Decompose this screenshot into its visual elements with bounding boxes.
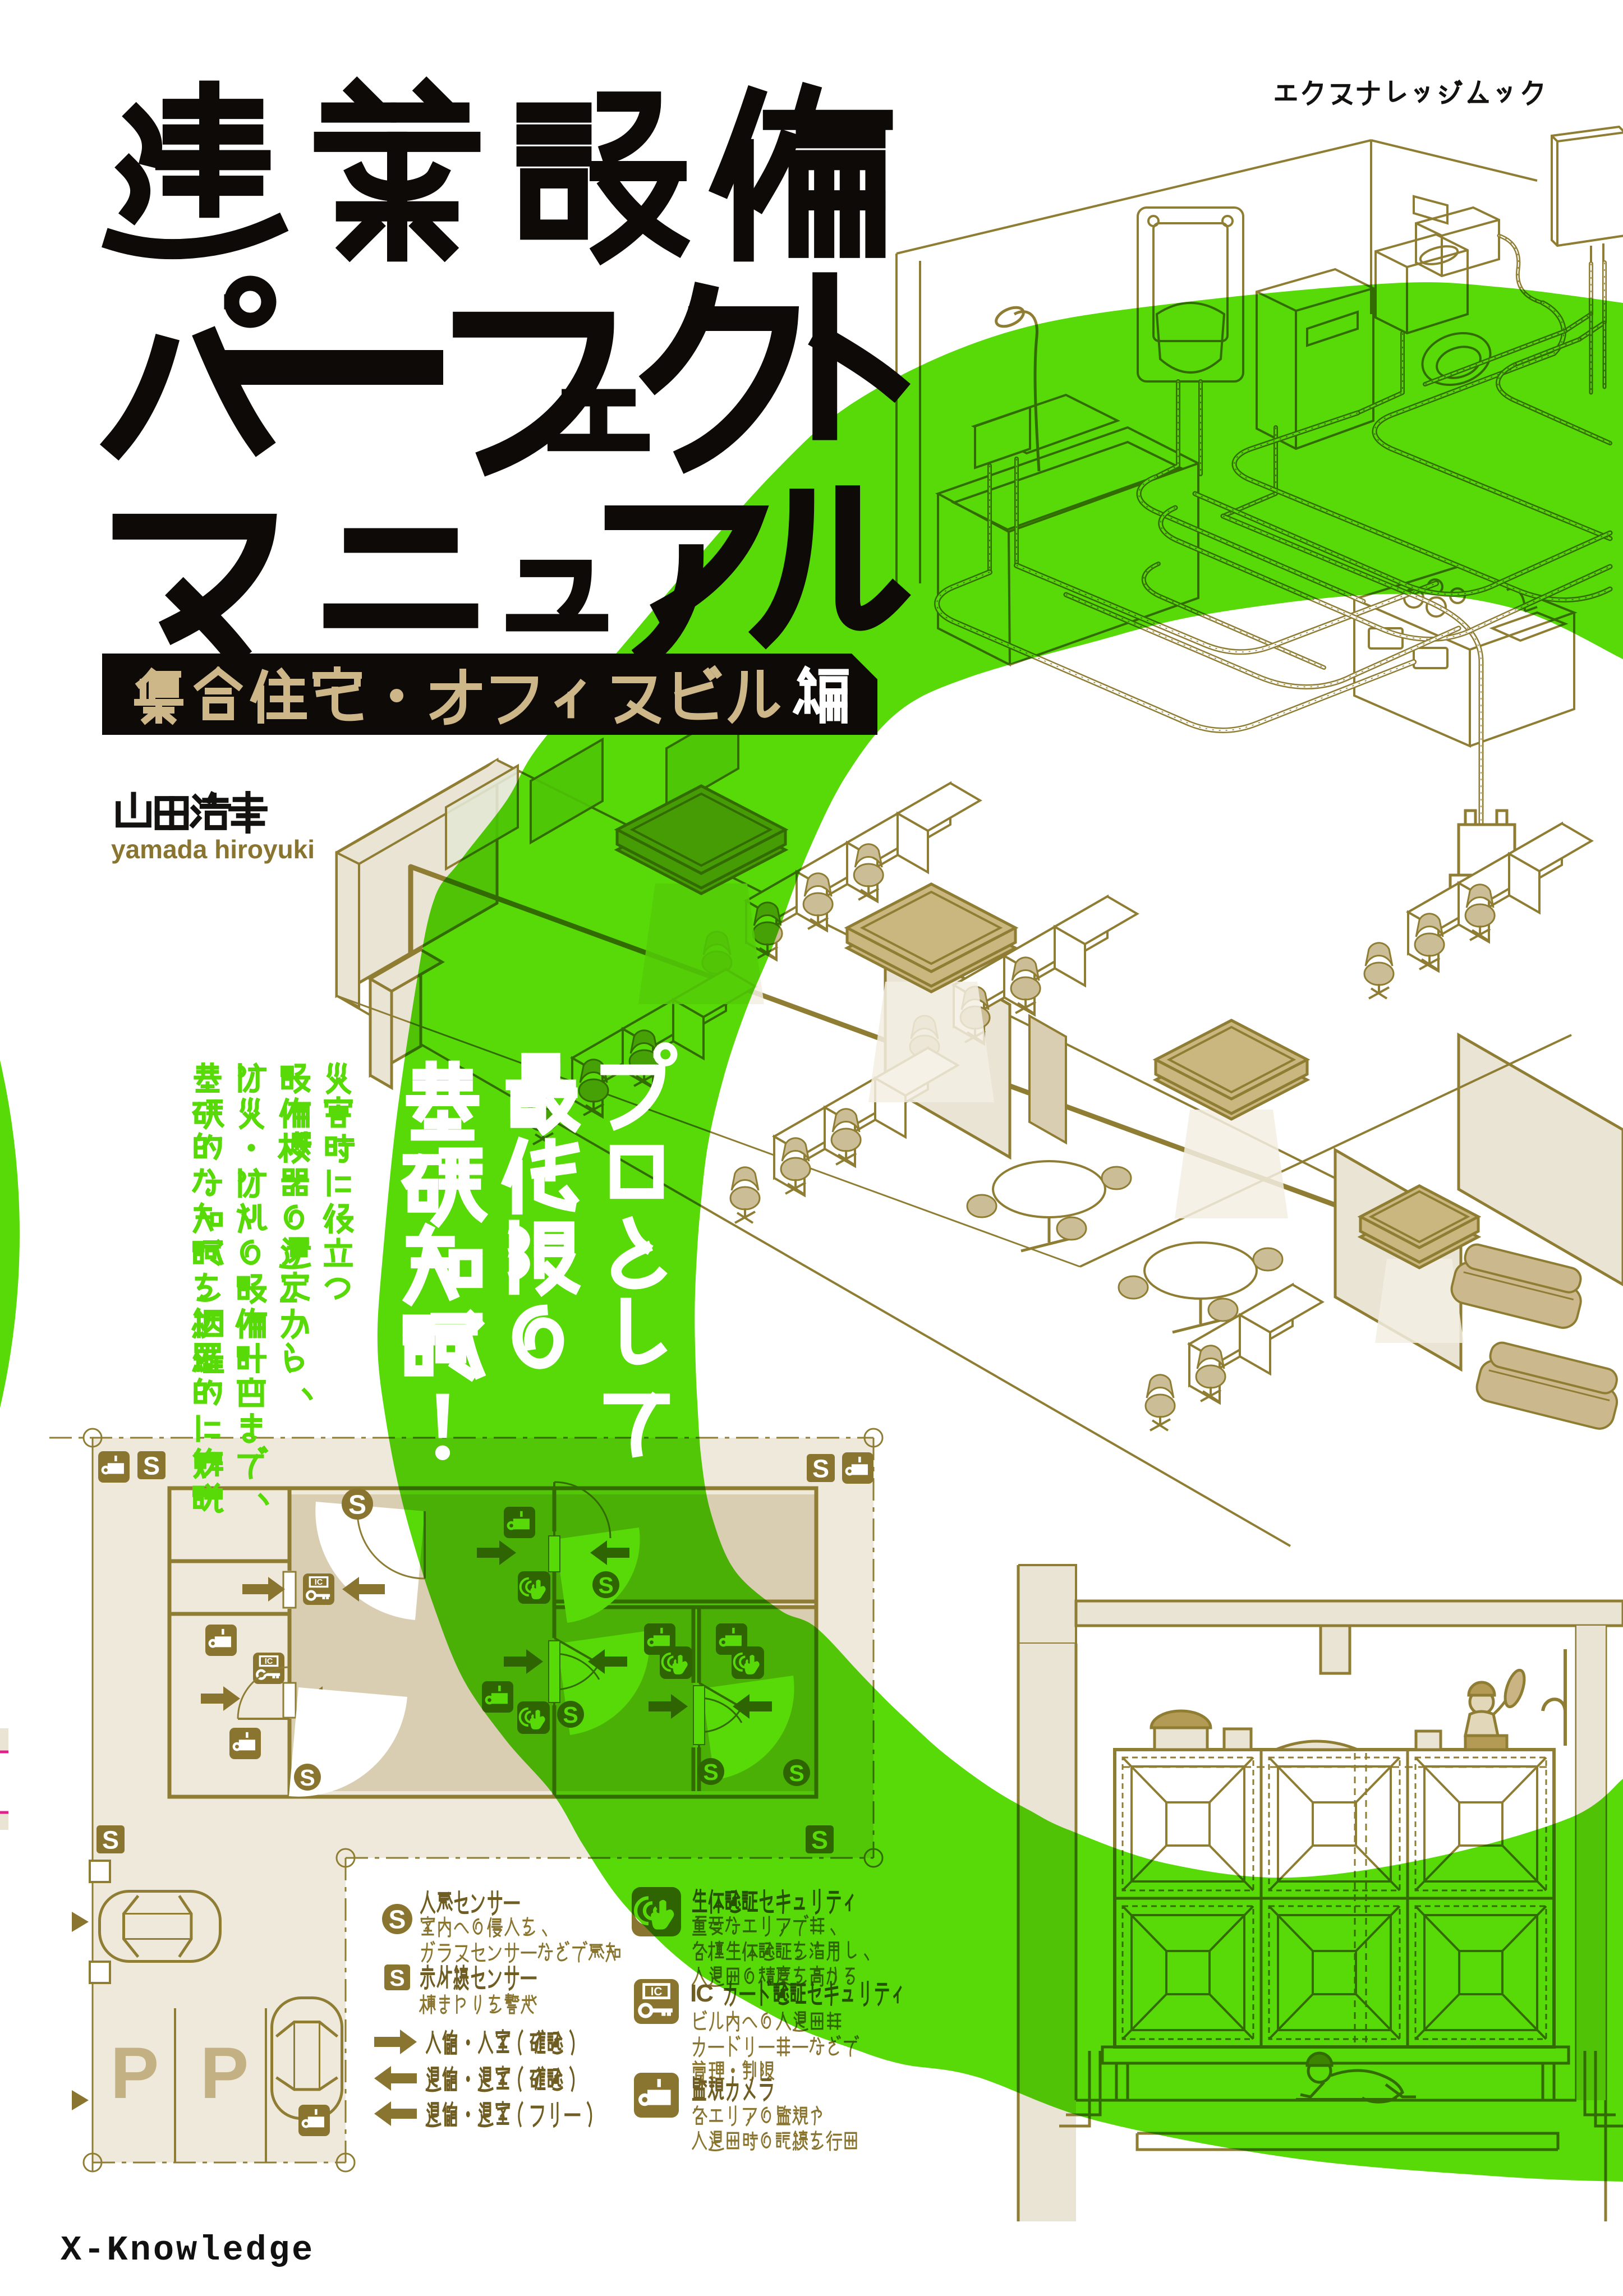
svg-text:X-Knowledge: X-Knowledge — [61, 2230, 315, 2270]
svg-text:yamada hiroyuki: yamada hiroyuki — [111, 835, 315, 864]
